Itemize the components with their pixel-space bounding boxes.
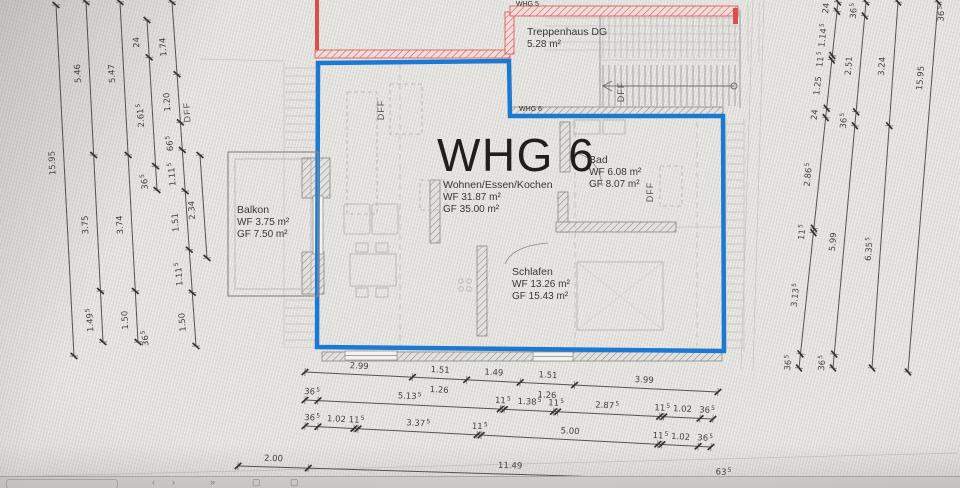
svg-text:2.34: 2.34: [187, 200, 198, 220]
svg-text:365: 365: [935, 5, 947, 22]
svg-text:3.135: 3.135: [789, 283, 802, 308]
svg-text:5.00: 5.00: [560, 426, 579, 437]
roof-lines: [0, 0, 958, 477]
svg-text:3.24: 3.24: [877, 57, 888, 77]
svg-text:24: 24: [132, 37, 143, 48]
jump-forward-icon[interactable]: »: [210, 477, 215, 488]
svg-text:365: 365: [816, 355, 828, 372]
whg5-label: WHG 5: [516, 1, 539, 8]
svg-text:1.145: 1.145: [816, 23, 829, 48]
room-name: Balkon: [237, 204, 289, 217]
svg-text:3.75: 3.75: [81, 215, 92, 234]
svg-text:365: 365: [139, 173, 151, 189]
room-wf: WF 31.87 m²: [443, 192, 553, 205]
svg-text:365: 365: [782, 354, 795, 371]
room-gf: GF 35.00 m²: [443, 204, 553, 217]
svg-text:365: 365: [140, 330, 152, 346]
whg6-small-label: WHG 6: [519, 106, 542, 113]
svg-text:115: 115: [348, 414, 364, 426]
svg-text:365: 365: [838, 112, 850, 129]
svg-text:3.375: 3.375: [406, 417, 430, 429]
room-name: Bad: [589, 154, 641, 167]
svg-text:DFF: DFF: [616, 82, 626, 103]
svg-text:1.385: 1.385: [517, 396, 541, 408]
floor-plan-drawing: 15.955.463.751.4955.473.741.50242.615365…: [0, 0, 960, 488]
room-label-schlafen: Schlafen WF 13.26 m² GF 15.43 m²: [512, 266, 570, 304]
svg-text:1.115: 1.115: [173, 262, 186, 287]
room-label-balkon: Balkon WF 3.75 m² GF 7.50 m²: [237, 204, 289, 242]
scroll-right-icon[interactable]: ›: [172, 477, 175, 488]
svg-text:365: 365: [697, 432, 713, 444]
svg-text:6.355: 6.355: [863, 237, 876, 262]
svg-text:5.135: 5.135: [397, 390, 421, 402]
svg-text:3.99: 3.99: [634, 375, 653, 386]
room-wf: WF 3.75 m²: [237, 217, 289, 230]
room-name: Schlafen: [512, 266, 570, 279]
svg-text:665: 665: [164, 135, 176, 152]
svg-text:2.51: 2.51: [844, 56, 856, 76]
floor-plan-photo: 15.955.463.751.4955.473.741.50242.615365…: [0, 0, 960, 488]
room-label-treppenhaus: Treppenhaus DG 5.28 m²: [527, 26, 607, 51]
svg-text:1.50: 1.50: [120, 310, 131, 329]
svg-text:365: 365: [304, 412, 320, 424]
room-gf: GF 15.43 m²: [512, 291, 570, 304]
horizontal-scrollbar[interactable]: ‹›»▢▢: [0, 476, 960, 488]
svg-text:1.49: 1.49: [484, 368, 503, 379]
room-gf: GF 7.50 m²: [237, 229, 289, 242]
svg-text:1.115: 1.115: [166, 162, 179, 187]
svg-text:365: 365: [304, 386, 320, 398]
svg-text:1.20: 1.20: [162, 92, 173, 112]
room-name: Wohnen/Essen/Kochen: [443, 179, 553, 192]
svg-text:115: 115: [548, 397, 564, 409]
room-label-bad: Bad WF 6.08 m² GF 8.07 m²: [589, 154, 641, 192]
svg-text:1.51: 1.51: [170, 213, 181, 233]
room-area: 5.28 m²: [527, 39, 607, 52]
svg-text:11.49: 11.49: [498, 461, 523, 472]
room-name: Treppenhaus DG: [527, 26, 607, 39]
svg-text:5.99: 5.99: [828, 232, 840, 252]
svg-text:1.495: 1.495: [84, 308, 96, 332]
room-wf: WF 13.26 m²: [512, 279, 570, 292]
roof-window-bad: [660, 166, 682, 206]
svg-text:2.99: 2.99: [350, 361, 369, 372]
svg-text:115: 115: [472, 421, 488, 433]
svg-text:365: 365: [848, 2, 860, 19]
unit-title: WHG 6: [437, 128, 595, 182]
room-label-wohnen: Wohnen/Essen/Kochen WF 31.87 m² GF 35.00…: [443, 179, 553, 217]
door-arc-schlafen: [505, 243, 548, 264]
svg-text:DFF: DFF: [181, 102, 192, 123]
svg-text:115: 115: [495, 395, 511, 407]
svg-text:2.615: 2.615: [135, 103, 147, 128]
room-wf: WF 6.08 m²: [589, 167, 641, 180]
svg-text:15.95: 15.95: [915, 66, 927, 91]
svg-text:2.00: 2.00: [264, 454, 283, 465]
svg-text:5.47: 5.47: [107, 64, 118, 83]
roof-window-kitchen: [390, 84, 422, 134]
svg-text:15.95: 15.95: [47, 151, 58, 176]
svg-text:DFF: DFF: [376, 100, 386, 121]
svg-text:24: 24: [821, 2, 832, 14]
svg-text:1.50: 1.50: [177, 312, 188, 332]
svg-text:3.74: 3.74: [115, 215, 126, 234]
dimension-chains: 15.955.463.751.4955.473.741.50242.615365…: [47, 0, 947, 485]
svg-text:24: 24: [810, 109, 821, 121]
svg-text:1.26: 1.26: [430, 385, 449, 396]
svg-text:1.51: 1.51: [430, 365, 449, 376]
svg-text:115: 115: [652, 430, 668, 442]
svg-text:115: 115: [814, 51, 827, 68]
svg-text:1.02: 1.02: [673, 404, 692, 415]
svg-text:DFF: DFF: [645, 182, 655, 203]
svg-text:115: 115: [654, 402, 670, 414]
svg-text:5.46: 5.46: [73, 64, 84, 83]
svg-text:2.865: 2.865: [802, 162, 815, 187]
room-gf: GF 8.07 m²: [589, 179, 641, 192]
scroll-track-icon[interactable]: [6, 479, 118, 488]
scroll-left-icon[interactable]: ‹: [152, 477, 155, 488]
svg-text:1.25: 1.25: [812, 76, 824, 96]
copy-page-icon[interactable]: ▢: [290, 477, 299, 488]
svg-text:2.875: 2.875: [595, 400, 619, 412]
svg-text:115: 115: [796, 224, 809, 241]
svg-text:1.02: 1.02: [327, 414, 346, 425]
svg-text:1.02: 1.02: [671, 432, 690, 443]
svg-text:365: 365: [699, 404, 715, 416]
svg-text:1.51: 1.51: [538, 370, 557, 381]
page-icon[interactable]: ▢: [252, 477, 261, 488]
svg-text:1.74: 1.74: [158, 37, 169, 57]
